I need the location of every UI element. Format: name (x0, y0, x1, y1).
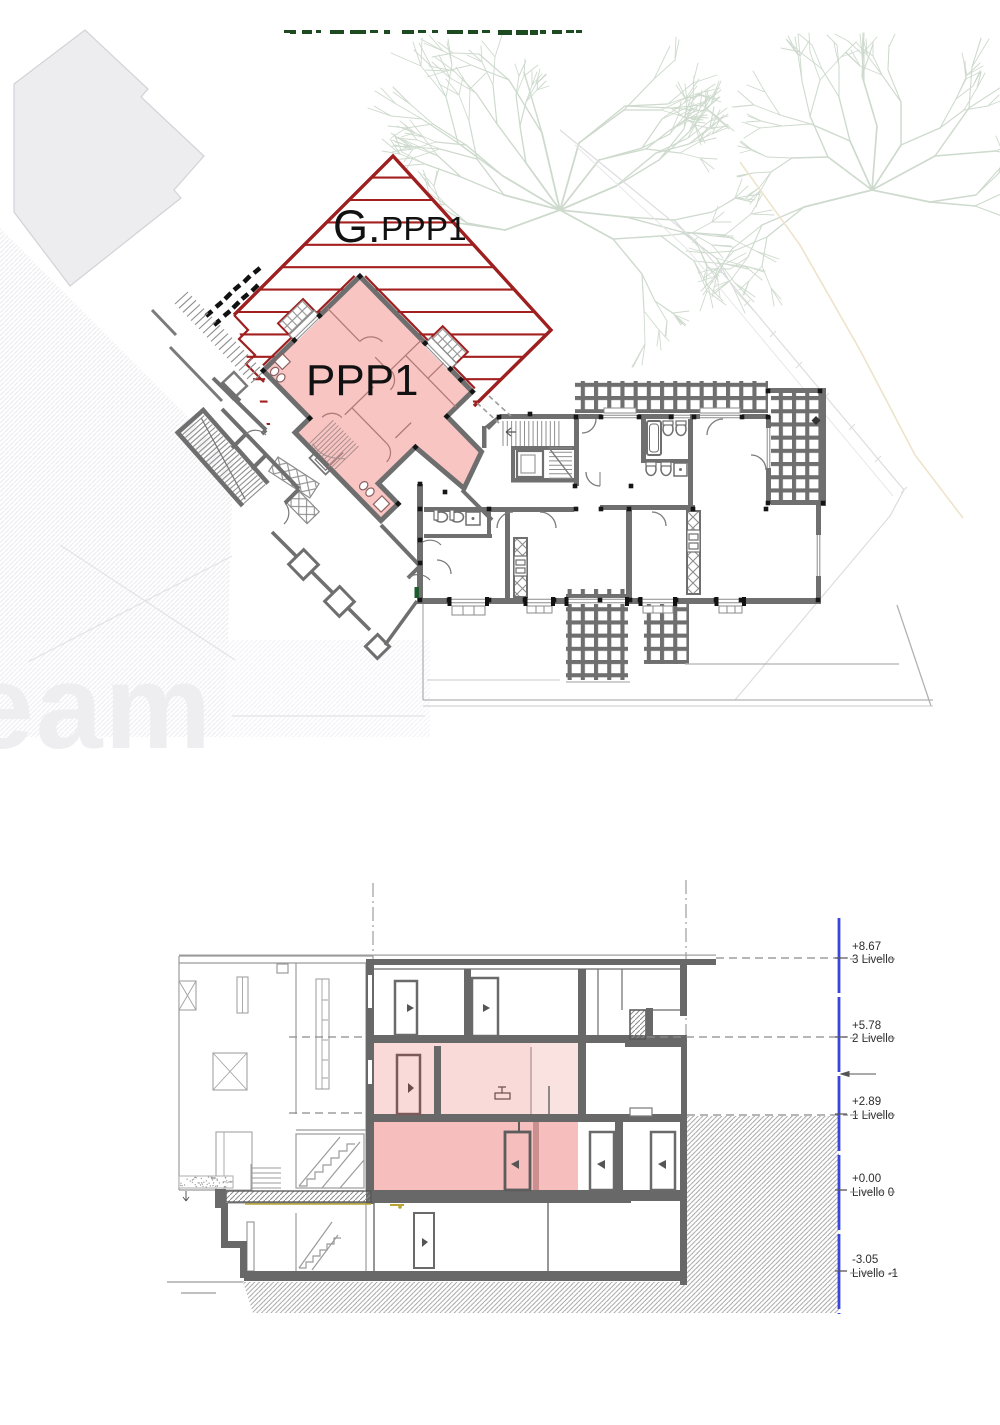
svg-text:team: team (0, 640, 213, 774)
svg-text:+2.89: +2.89 (852, 1096, 881, 1108)
svg-text:+8.67: +8.67 (852, 941, 881, 953)
svg-text:+0.00: +0.00 (852, 1173, 881, 1185)
svg-text:+5.78: +5.78 (852, 1020, 881, 1032)
svg-text:-3.05: -3.05 (852, 1254, 878, 1266)
svg-text:3 Livello: 3 Livello (852, 954, 894, 966)
svg-text:G.: G. (333, 201, 381, 252)
svg-text:2 Livello: 2 Livello (852, 1033, 894, 1045)
svg-text:Livello -1: Livello -1 (852, 1268, 898, 1280)
svg-text:PPP1: PPP1 (306, 356, 419, 405)
svg-text:Livello 0: Livello 0 (852, 1187, 894, 1199)
svg-text:1 Livello: 1 Livello (852, 1110, 894, 1122)
svg-text:PPP1: PPP1 (381, 211, 467, 248)
